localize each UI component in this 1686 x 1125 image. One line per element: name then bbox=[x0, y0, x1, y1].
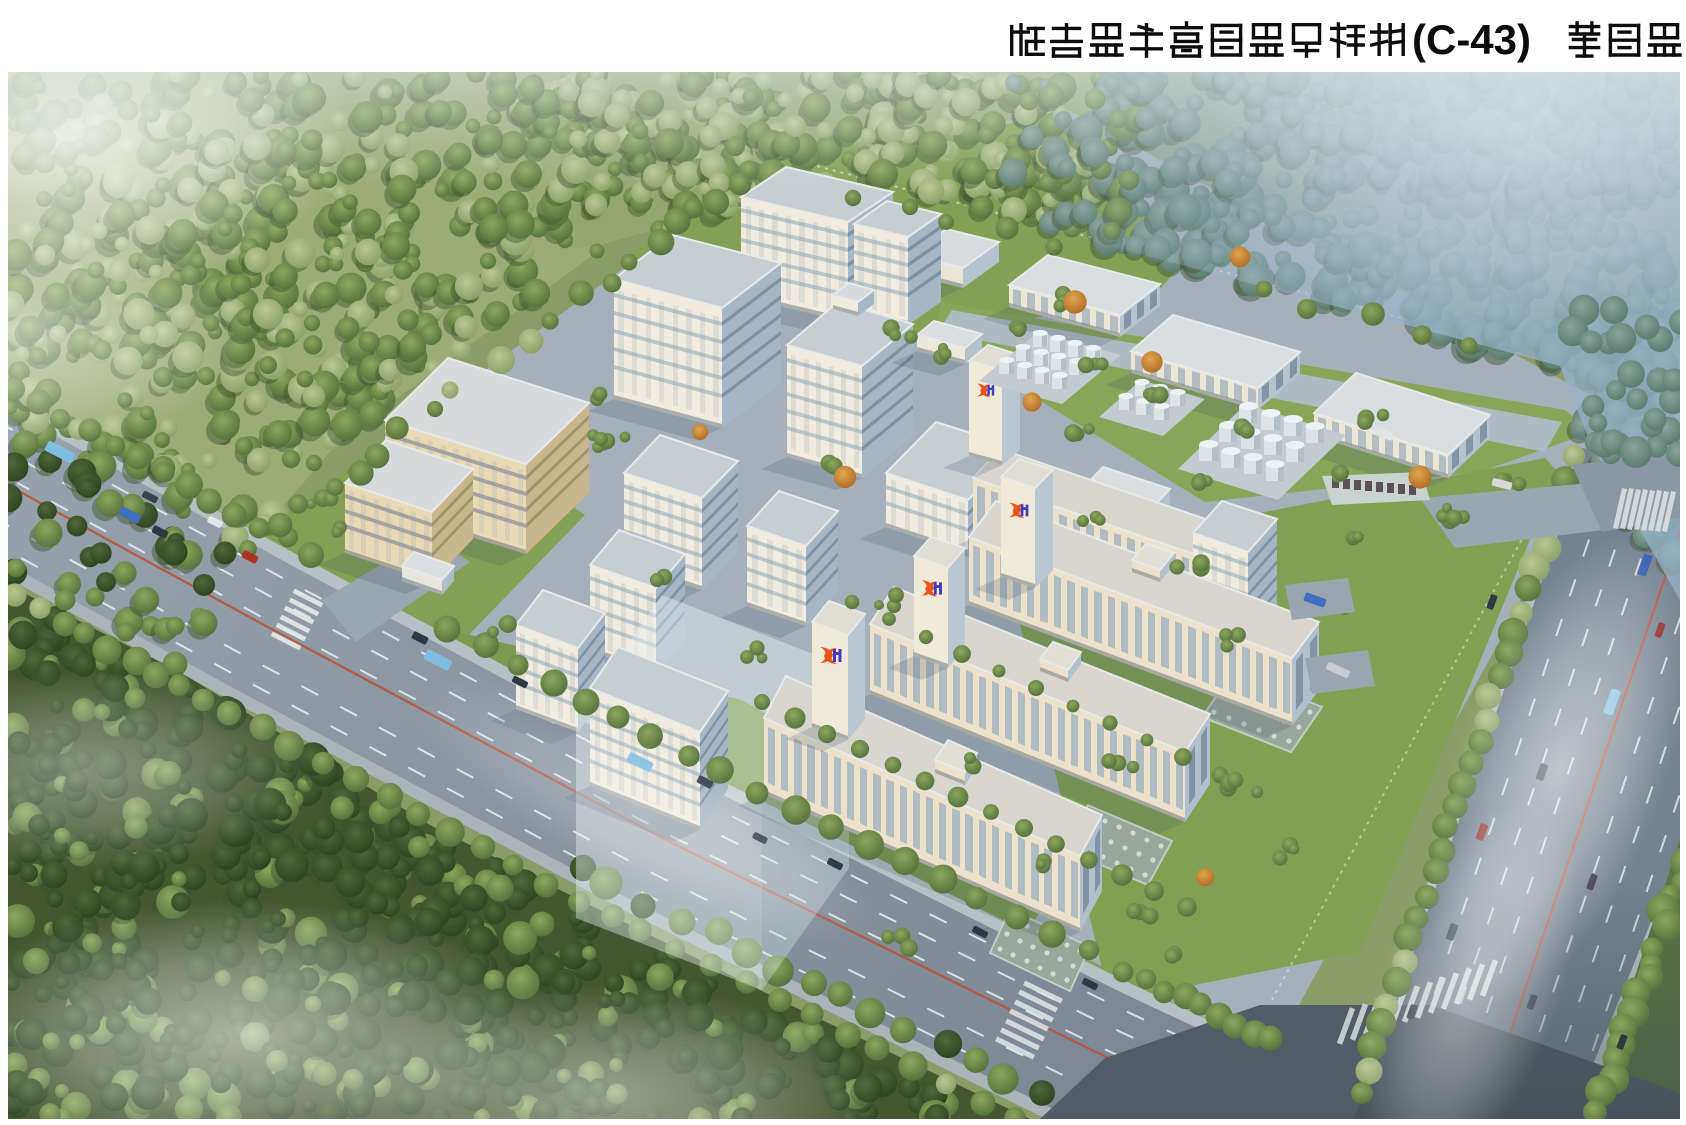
svg-text:(C-43): (C-43) bbox=[1412, 16, 1531, 63]
